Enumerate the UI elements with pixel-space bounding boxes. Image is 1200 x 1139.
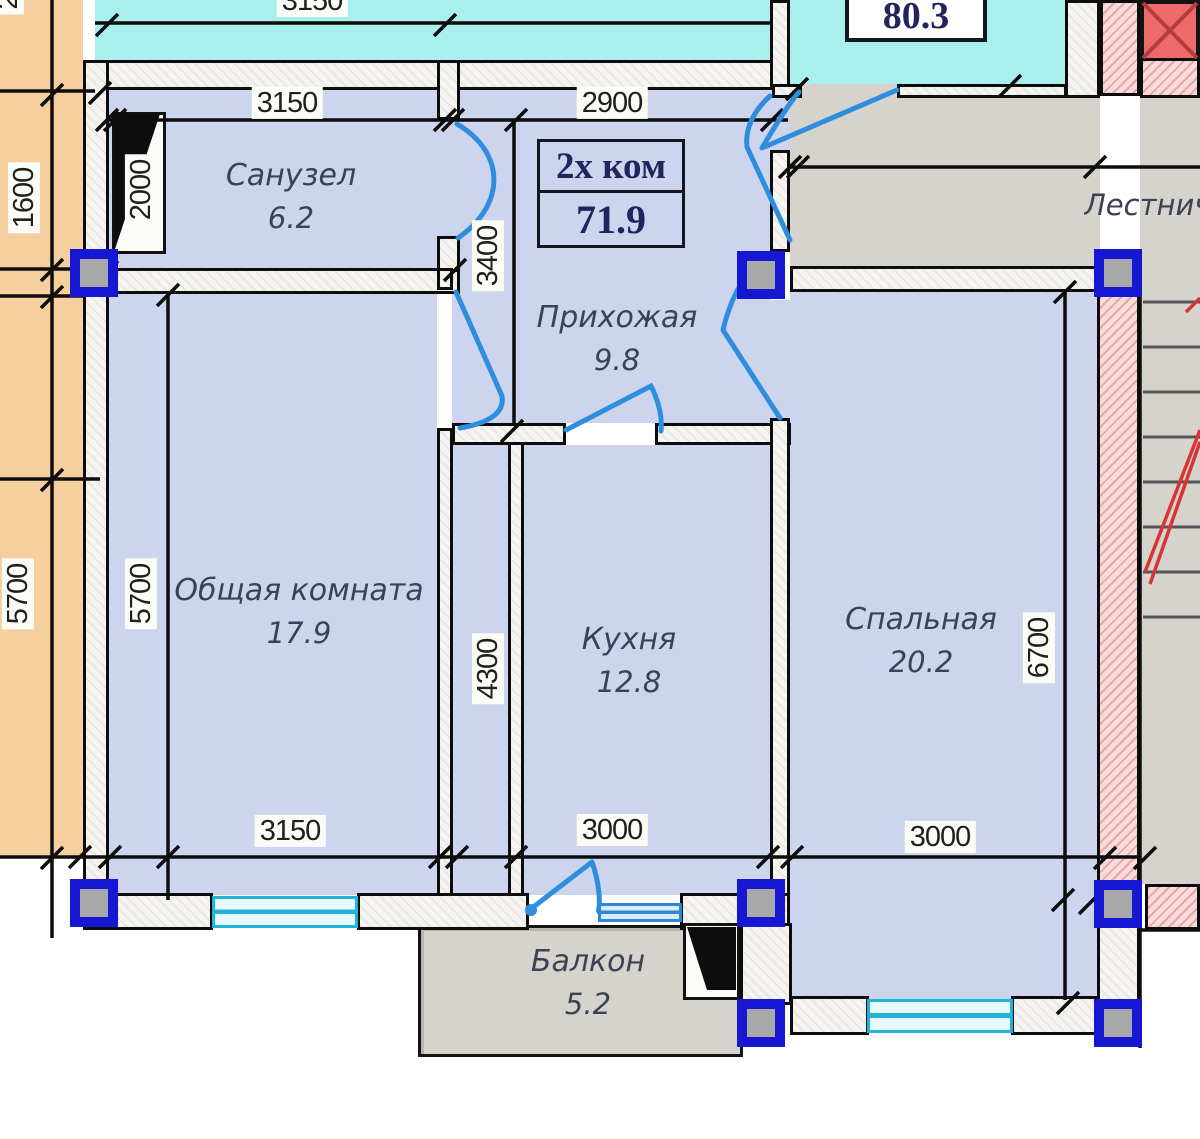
stair-shaft-room <box>1140 0 1200 62</box>
wall-hall-right-mid <box>770 150 790 252</box>
wall-corridor-top-b <box>897 84 1067 98</box>
window-balcony-block <box>598 903 682 922</box>
dim-kitchen-bottom: 3000 <box>577 814 648 846</box>
dim-kitchen-4300: 4300 <box>472 634 504 705</box>
room-area: 5.2 <box>531 984 645 1025</box>
room-name: Балкон <box>531 941 645 984</box>
door-hinge-dots <box>525 904 608 916</box>
dim-strip-fill <box>452 292 508 895</box>
wall-living-right-b <box>437 428 453 930</box>
wall-right-lower-strip <box>1097 925 1140 1003</box>
room-area: 6.2 <box>226 198 356 239</box>
label-sanuzel: Санузел 6.2 <box>226 155 356 239</box>
neighbor-area-box: 80.3 <box>845 0 987 42</box>
column <box>1094 880 1142 928</box>
staircase-area <box>1140 284 1200 884</box>
column <box>737 879 785 927</box>
neighbor-apartment-left <box>0 0 83 858</box>
room-name: Спальная <box>845 599 997 642</box>
label-obshchaya: Общая комната 17.9 <box>174 570 423 654</box>
corridor-patch <box>800 84 897 98</box>
label-lestnitsa: Лестничная <box>1084 188 1200 222</box>
bedroom-doorway-fill <box>770 300 790 420</box>
window-bedroom <box>867 999 1013 1033</box>
column <box>737 999 785 1047</box>
label-spalnaya: Спальная 20.2 <box>845 599 997 683</box>
wall-bedroom-bottom-b <box>1011 996 1097 1035</box>
dim-living-5700: 5700 <box>125 559 157 630</box>
dim-bedroom-6700: 6700 <box>1023 613 1055 684</box>
apartment-title-box: 2х ком 71.9 <box>537 139 685 248</box>
apartment-area: 71.9 <box>540 193 682 245</box>
dim-left-1600: 1600 <box>8 163 40 234</box>
wall-sanuzel-bottom <box>83 268 460 294</box>
wall-pink-top <box>1100 0 1140 96</box>
column <box>70 249 118 297</box>
column <box>1094 249 1142 297</box>
window-living-room <box>212 896 358 928</box>
wall-hall-right-top <box>770 0 790 90</box>
wall-bedroom-bottom-a <box>790 996 869 1035</box>
room-name: Санузел <box>226 155 356 198</box>
apartment-type: 2х ком <box>540 142 682 193</box>
column <box>70 879 118 927</box>
floor-plan: 3150 3150 2900 3150 3000 3000 1600 2000 … <box>0 0 1200 1139</box>
room-area: 17.9 <box>174 613 423 654</box>
wall-pink-bottom-right <box>1145 884 1200 930</box>
wall-hall-bottom-a <box>452 423 566 445</box>
dim-far-left-5700: 5700 <box>2 559 34 630</box>
dim-living-bottom: 3150 <box>255 815 326 847</box>
wall-corridor-top-a <box>772 84 802 98</box>
room-name: Прихожая <box>537 297 698 340</box>
wall-pink-under-red <box>1140 58 1200 98</box>
room-name: Кухня <box>582 619 676 662</box>
room-area: 20.2 <box>845 642 997 683</box>
wall-kitchen-left <box>508 423 524 930</box>
vent-shaft-balcony <box>683 923 740 1000</box>
corridor-area <box>790 96 1100 272</box>
dim-bedroom-bottom: 3000 <box>905 821 976 853</box>
neighbor-area-value: 80.3 <box>883 0 950 38</box>
neighbor-apartment-top-left <box>95 0 772 62</box>
wall-bedroom-top <box>790 266 1097 292</box>
dim-corner-cut: 2 <box>0 0 24 15</box>
room-area: 12.8 <box>582 662 676 703</box>
wall-pink-main <box>1097 294 1140 884</box>
wall-balcony-right-block <box>740 923 792 1005</box>
room-area: 9.8 <box>537 340 698 381</box>
wall-bottom-b <box>357 893 529 930</box>
label-balkon: Балкон 5.2 <box>531 941 645 1025</box>
dim-hall-top: 2900 <box>577 87 648 119</box>
column <box>1094 999 1142 1047</box>
room-name: Общая комната <box>174 570 423 613</box>
wall-sanuzel-right-a <box>437 60 460 120</box>
column <box>737 251 785 299</box>
label-prihozhaya: Прихожая 9.8 <box>537 297 698 381</box>
wall-sanuzel-right-b <box>437 236 460 272</box>
wall-left-outer <box>83 60 109 930</box>
dim-sanuzel-top: 3150 <box>252 87 323 119</box>
dim-vent-2000: 2000 <box>125 155 157 226</box>
wall-cyan-pink-gap <box>1065 0 1100 98</box>
wall-living-right-a <box>437 268 453 290</box>
sanuzel-doorway-fill <box>437 118 460 238</box>
dim-top-neighbor: 3150 <box>277 0 348 17</box>
wall-kitchen-right <box>770 418 790 930</box>
dim-hall-3400: 3400 <box>472 221 504 292</box>
label-kuhnya: Кухня 12.8 <box>582 619 676 703</box>
